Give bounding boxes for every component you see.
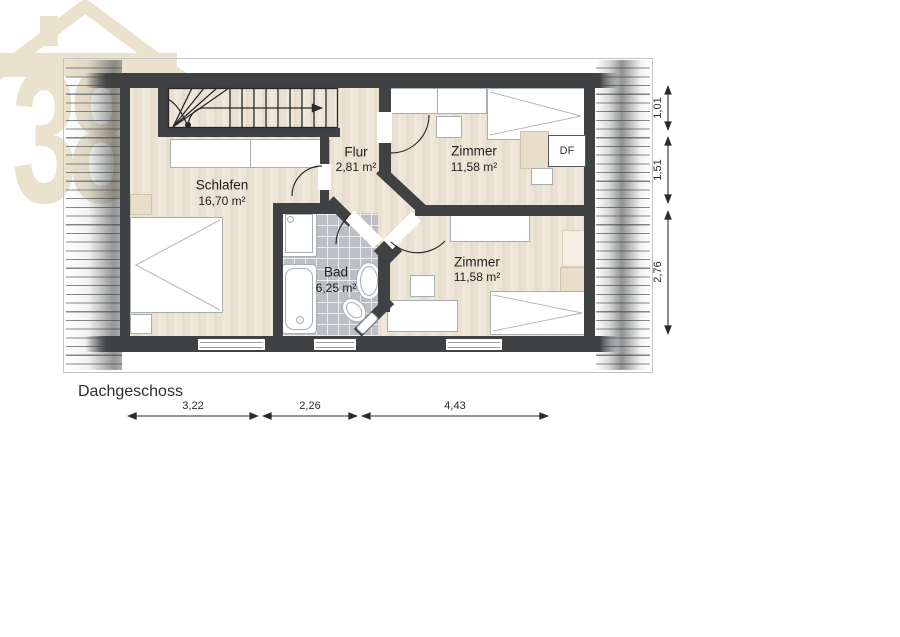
dim-bottom-1: 3,22	[182, 400, 203, 412]
room-label-bad: Bad	[324, 265, 348, 280]
floor-plan-canvas: 38	[0, 0, 900, 637]
door-arc-zimmer-top	[391, 115, 429, 153]
room-label-zimmer-bottom: Zimmer	[454, 255, 500, 270]
stair-start-dot	[185, 122, 191, 128]
room-label-flur: Flur	[344, 145, 367, 160]
dim-bottom-3: 4,43	[444, 400, 465, 412]
dim-bottom-2: 2,26	[299, 400, 320, 412]
floor-title: Dachgeschoss	[78, 383, 183, 401]
room-area-zimmer-bottom: 11,58 m²	[454, 270, 500, 284]
room-label-schlafen: Schlafen	[196, 178, 249, 193]
door-arc-zimmer-bottom	[391, 241, 445, 253]
dim-right-1: 1,01	[652, 97, 664, 118]
room-label-zimmer-top: Zimmer	[451, 144, 497, 159]
room-area-bad: 6,25 m²	[316, 281, 357, 295]
dim-right-3: 2,76	[652, 261, 664, 282]
dim-right-2: 1,51	[652, 159, 664, 180]
staircase	[168, 88, 338, 128]
room-area-flur: 2,81 m²	[336, 160, 377, 174]
door-arcs	[292, 115, 445, 253]
door-arc-bad	[336, 217, 348, 244]
door-arc-schlafen	[292, 166, 322, 196]
room-area-zimmer-top: 11,58 m²	[451, 160, 497, 174]
linework-overlay: 3,22 2,26 4,43 1,01 1,51 2,76	[0, 0, 900, 637]
room-area-schlafen: 16,70 m²	[198, 194, 245, 208]
toilet	[337, 293, 378, 334]
